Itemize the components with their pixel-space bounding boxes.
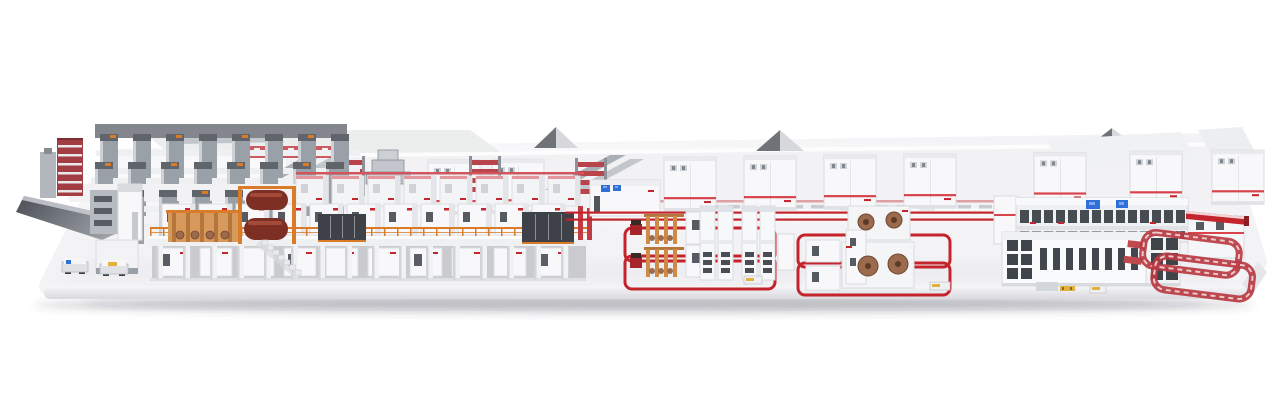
display-screen: [1086, 200, 1100, 209]
gable-roof: [534, 127, 578, 148]
scene-canvas: [0, 0, 1280, 405]
agv: [62, 258, 88, 274]
display-screen: [613, 185, 621, 191]
reel-storage-unit: [1130, 151, 1182, 205]
paper-roll: [246, 190, 288, 210]
pallet: [1060, 286, 1075, 291]
corrugated-board-plant-render: [0, 0, 1280, 405]
reel-storage-unit: [664, 157, 716, 211]
mounted-paper-roll: [888, 254, 908, 274]
splicer-tower: [700, 206, 715, 280]
transfer-cart: [930, 282, 950, 290]
splicer-tower: [718, 206, 733, 280]
mounted-paper-roll: [858, 214, 874, 230]
splicer-tower: [760, 206, 775, 280]
mounted-paper-roll: [858, 256, 878, 276]
paper-roll: [244, 218, 288, 240]
agv: [100, 260, 128, 276]
reel-storage-unit: [1212, 150, 1264, 204]
splicer-tower: [742, 206, 757, 280]
display-screen: [601, 185, 610, 192]
mounted-paper-roll: [886, 212, 902, 228]
reel-storage-unit: [904, 154, 956, 208]
control-station: [590, 180, 660, 216]
display-screen: [1116, 200, 1128, 208]
reel-storage-unit: [744, 156, 796, 210]
reel-storage-unit: [824, 155, 876, 209]
transfer-cart: [744, 276, 762, 284]
deck-roll-racks: [166, 210, 242, 242]
